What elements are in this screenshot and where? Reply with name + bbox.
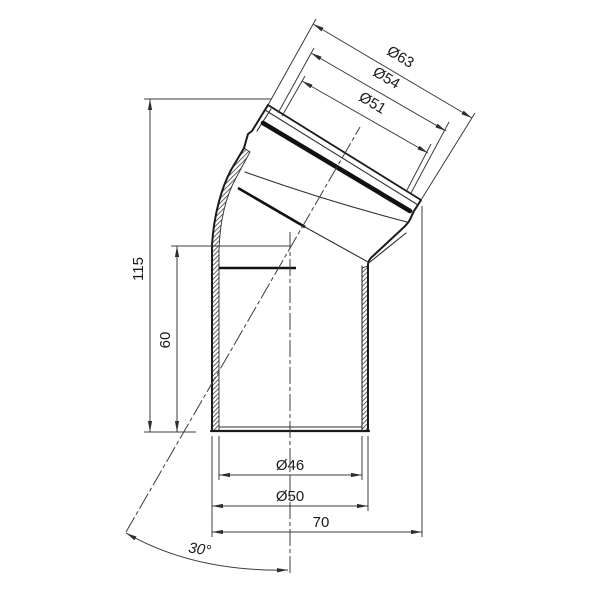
socket-rim-line — [265, 110, 418, 205]
dim-label-socket-outer-dia: Ø63 — [384, 43, 417, 72]
inclined-axis-centerline — [126, 127, 360, 532]
ext-line-dia63-right — [421, 113, 475, 200]
dim-label-bore-dia: Ø46 — [276, 457, 304, 474]
cavity-edge-right-half — [305, 227, 368, 262]
right-taper-inner-line — [370, 233, 406, 262]
ext-line-dia51-right — [407, 144, 431, 190]
ext-line-dia51-left — [282, 76, 305, 116]
dim-label-horizontal-span: 70 — [313, 514, 330, 531]
dim-label-socket-inner-dia: Ø51 — [356, 89, 389, 118]
dimensions: Ø63 Ø54 Ø51 115 60 Ø46 Ø50 70 30° — [126, 19, 475, 570]
dim-label-socket-mid-dia: Ø54 — [370, 64, 403, 93]
socket-mouth-face — [268, 105, 421, 200]
right-outer-wall — [368, 200, 421, 431]
dim-label-bend-angle: 30° — [187, 539, 212, 559]
dim-label-total-height: 115 — [130, 257, 147, 281]
pipe-elbow-drawing: Ø63 Ø54 Ø51 115 60 Ø46 Ø50 70 30° — [0, 0, 600, 600]
centerlines — [126, 127, 360, 576]
dim-label-pipe-outer-dia: Ø50 — [276, 488, 304, 505]
socket-cavity-end-edge — [238, 188, 305, 227]
technical-drawing-canvas: Ø63 Ø54 Ø51 115 60 Ø46 Ø50 70 30° — [0, 0, 600, 600]
ext-line-dia54-right — [411, 122, 449, 193]
ext-line-dia54-left — [278, 48, 314, 113]
dim-label-center-height: 60 — [157, 332, 174, 349]
ext-line-dia63-left — [268, 19, 316, 105]
